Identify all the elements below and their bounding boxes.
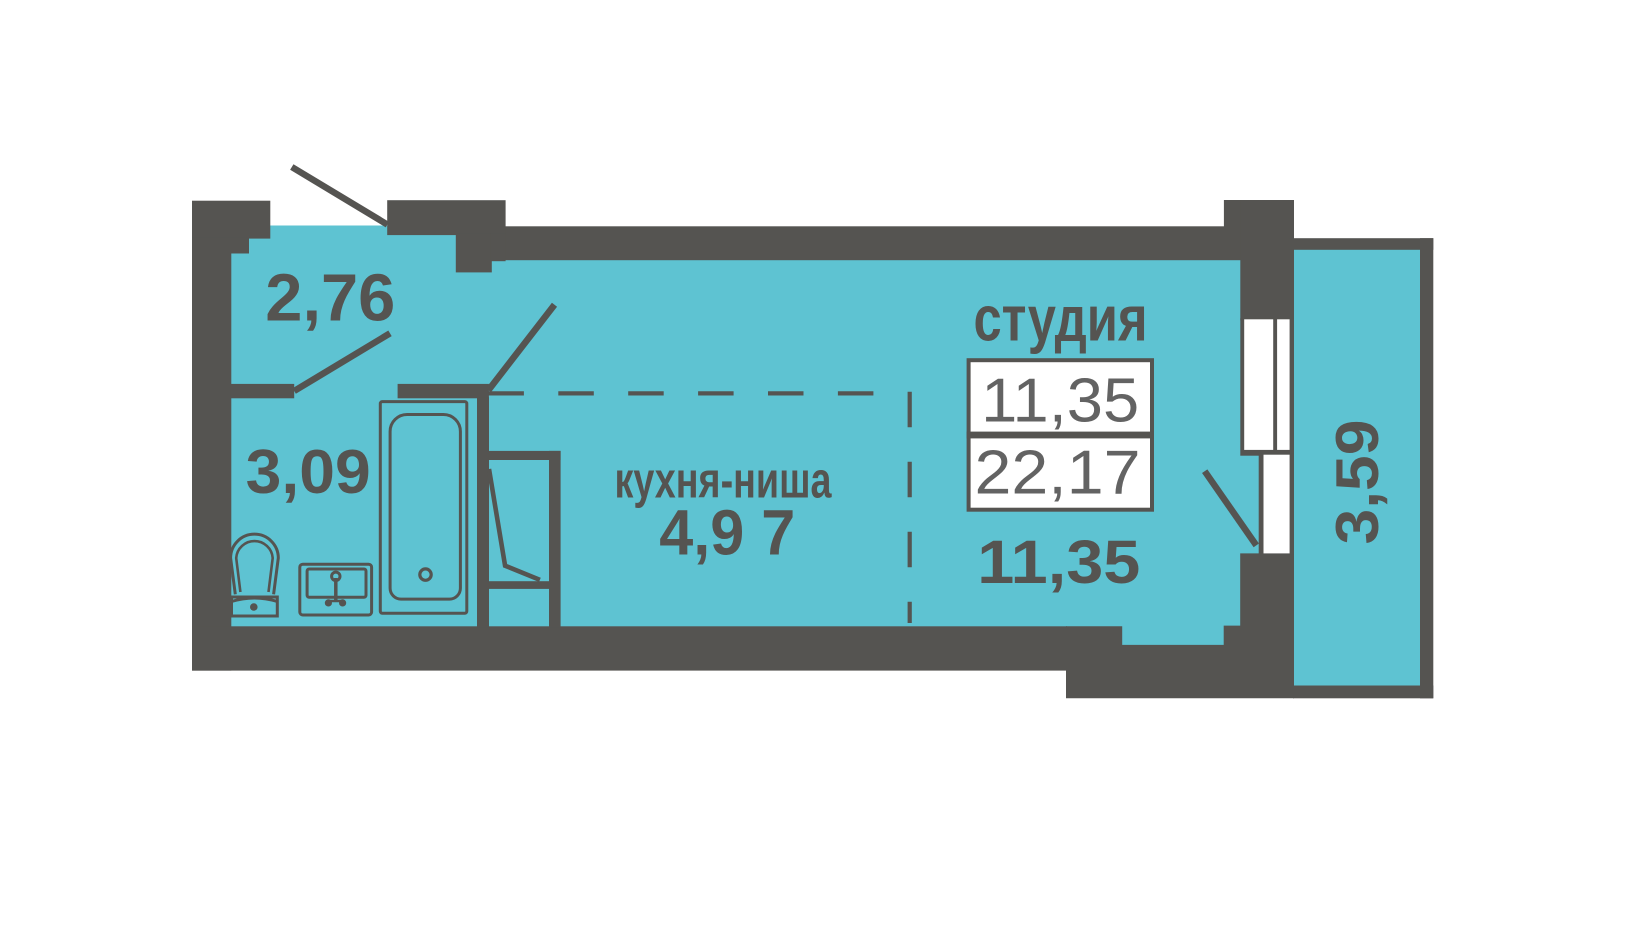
svg-text:11,35: 11,35 [981,365,1139,435]
svg-text:3,09: 3,09 [246,438,371,507]
svg-text:2,76: 2,76 [265,261,395,336]
svg-text:4,9 7: 4,9 7 [659,496,795,568]
svg-text:11,35: 11,35 [977,528,1140,597]
svg-text:3,59: 3,59 [1324,420,1391,545]
svg-text:22,17: 22,17 [975,438,1141,508]
svg-text:студия: студия [974,282,1148,354]
